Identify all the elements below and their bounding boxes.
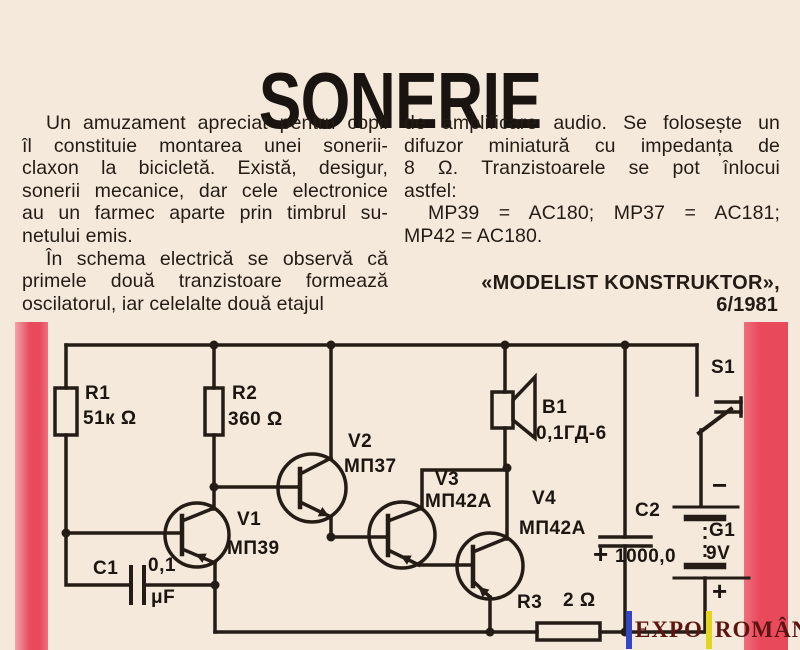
- resistor-r2-body: [205, 388, 223, 435]
- label-v1-type: МП39: [227, 539, 280, 558]
- junction-dot: [211, 581, 220, 590]
- right-paragraph-2: MP39 = AC180; MP37 = AC181;MP42 = AC180.: [404, 202, 780, 247]
- label-c2-value: 1000,0: [615, 547, 676, 566]
- label-b1-name: B1: [542, 398, 567, 417]
- label-r3-name: R3: [517, 593, 542, 612]
- watermark-word-expo: EXPO: [635, 617, 703, 643]
- label-v4-name: V4: [532, 489, 556, 508]
- transistor-v4-collector: [473, 538, 507, 552]
- label-r1-value: 51к Ω: [83, 409, 137, 428]
- v2-emitter-to-v3-base: [331, 517, 387, 537]
- junction-dot: [486, 628, 495, 637]
- transistor-v3-collector: [388, 508, 422, 521]
- text-line: MP42 = AC180.: [404, 225, 780, 248]
- label-v3-name: V3: [435, 470, 459, 489]
- label-c2-name: C2: [635, 501, 660, 520]
- expo-romania-watermark: EXPO ROMÂNIA: [626, 611, 800, 649]
- watermark-yellow-bar-icon: [706, 611, 712, 649]
- circuit-area: R151к ΩR2360 ΩV2МП37V1МП39V3МП42АV4МП42А…: [0, 322, 800, 650]
- attribution-source: «MODELIST KONSTRUKTOR»,: [404, 272, 780, 295]
- label-g1-name: G1: [709, 521, 735, 540]
- text-line: netului emis.: [22, 225, 388, 248]
- attribution-issue: 6/1981: [404, 294, 780, 317]
- left-paragraph-2: În schema electrică se observă căprimele…: [22, 248, 388, 316]
- label-g1-minus: −: [712, 472, 727, 498]
- label-c1-name: C1: [93, 559, 118, 578]
- text-line: de amplificare audio. Se folosește un: [404, 112, 780, 135]
- label-c1-unit: μF: [151, 588, 175, 607]
- junction-dot: [501, 341, 510, 350]
- junction-dot: [210, 483, 219, 492]
- junction-dot: [327, 341, 336, 350]
- left-column: Un amuzament apreciat pentru copiiîl con…: [22, 112, 388, 315]
- text-line: sonerii mecanice, dar cele electronice: [22, 180, 388, 203]
- label-r1-name: R1: [85, 384, 110, 403]
- label-g1-plus: +: [712, 578, 727, 604]
- junction-dot: [327, 533, 336, 542]
- left-paragraph-1: Un amuzament apreciat pentru copiiîl con…: [22, 112, 388, 248]
- magazine-page: { "article": { "title": "SONERIE", "left…: [0, 0, 800, 650]
- label-c2-plus: +: [593, 541, 608, 567]
- watermark-word-romania: ROMÂNIA: [715, 617, 800, 643]
- text-line: 8 Ω. Tranzistoarele se pot înlocui: [404, 157, 780, 180]
- text-line: claxon la bicicletă. Există, desigur,: [22, 157, 388, 180]
- label-g1-value: 9V: [706, 544, 730, 563]
- label-s1-name: S1: [711, 358, 735, 377]
- label-c1-value: 0,1: [148, 556, 176, 575]
- label-v2-type: МП37: [344, 457, 397, 476]
- label-r2-name: R2: [232, 384, 257, 403]
- circuit-schematic: [0, 322, 800, 650]
- text-line: În schema electrică se observă că: [22, 248, 388, 271]
- label-v3-type: МП42А: [425, 492, 492, 511]
- speaker-horn: [513, 377, 535, 438]
- junction-dot: [210, 341, 219, 350]
- label-r2-value: 360 Ω: [228, 410, 283, 429]
- label-v4-type: МП42А: [519, 519, 586, 538]
- text-line: astfel:: [404, 180, 780, 203]
- right-paragraph-1: de amplificare audio. Se folosește undif…: [404, 112, 780, 202]
- label-v1-name: V1: [237, 510, 261, 529]
- text-line: difuzor miniatură cu impedanța de: [404, 135, 780, 158]
- transistor-v1-collector: [182, 508, 214, 521]
- resistor-r1-body: [55, 388, 77, 435]
- text-line: au un farmec aparte prin timbrul su-: [22, 202, 388, 225]
- text-line: Un amuzament apreciat pentru copii: [22, 112, 388, 135]
- label-v2-name: V2: [348, 432, 372, 451]
- right-column: de amplificare audio. Se folosește undif…: [404, 112, 780, 317]
- junction-dot: [621, 341, 630, 350]
- label-b1-type: 0,1ГД-6: [536, 424, 607, 443]
- text-line: oscilatorul, iar celelalte două etajul: [22, 293, 388, 316]
- watermark-blue-bar-icon: [626, 611, 632, 649]
- text-line: MP39 = AC180; MP37 = AC181;: [404, 202, 780, 225]
- text-line: primele două tranzistoare formează: [22, 270, 388, 293]
- junction-dot: [62, 529, 71, 538]
- speaker-body: [492, 392, 513, 428]
- label-r3-value: 2 Ω: [563, 591, 596, 610]
- junction-dot: [503, 464, 512, 473]
- transistor-v2-collector: [300, 458, 331, 474]
- text-line: îl constituie montarea unei sonerii-: [22, 135, 388, 158]
- resistor-r3-body: [537, 623, 600, 640]
